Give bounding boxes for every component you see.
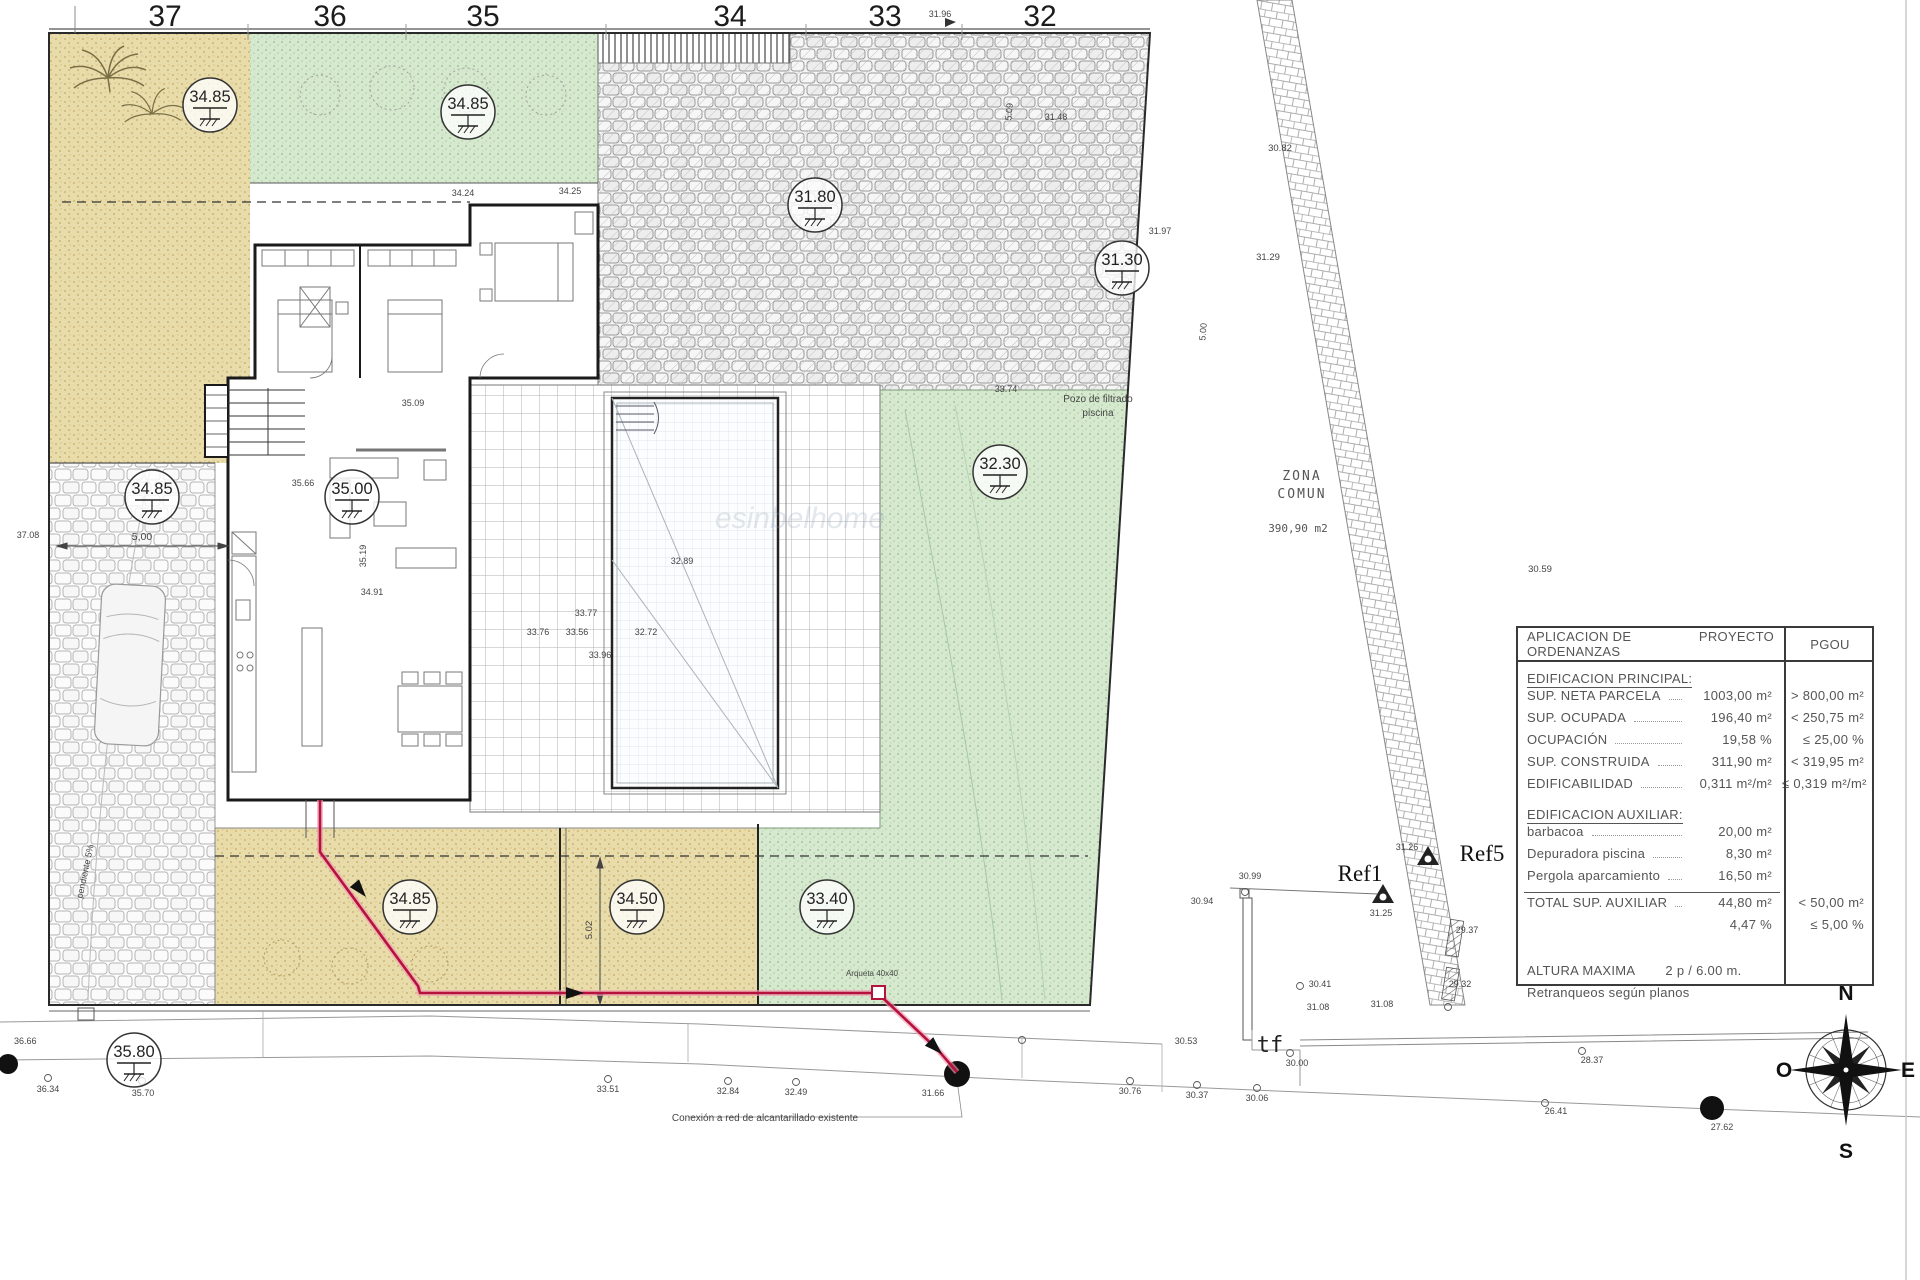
elevation-value: 34.50 [616,890,657,908]
tf-label: tf [1257,1033,1284,1058]
spot-label: 33.51 [597,1084,620,1094]
ref5-label: Ref5 [1460,841,1505,866]
elevation-value: 31.80 [794,188,835,206]
spot-label: 32.49 [785,1087,808,1097]
spot-label: 33.76 [527,627,550,637]
terrace-and-pool [470,385,880,812]
ordinance-row: SUP. NETA PARCELA 1003,00 m² > 800,00 m² [1518,688,1872,710]
spot-label: 33.77 [575,608,598,618]
table-header: APLICACION DE ORDENANZAS PROYECTO PGOU [1518,628,1872,662]
elevation-value: 35.00 [331,480,372,498]
cobble-hatch-overlay [598,33,1150,390]
total-divider [1524,892,1780,893]
spot-label: 30.37 [1186,1090,1209,1100]
elevation-value: 33.40 [806,890,847,908]
spot-label: 5.02 [584,921,595,940]
elevation-value: 34.85 [189,88,230,106]
elevation-marker: 34.85 [383,880,437,934]
spot-label: 36.34 [37,1084,60,1094]
ordinance-row: EDIFICABILIDAD 0,311 m²/m² ≤ 0,319 m²/m² [1518,776,1872,798]
spot-label: 29.37 [1456,925,1479,935]
spot-label: 35.66 [292,478,315,488]
total-percent-row: 4,47 % ≤ 5,00 % [1518,917,1872,939]
section-principal: EDIFICACION PRINCIPAL: [1518,662,1872,688]
spot-label: 30.82 [1268,143,1292,154]
elevation-marker: 31.30 [1095,241,1149,295]
ordinance-row: SUP. OCUPADA 196,40 m² < 250,75 m² [1518,710,1872,732]
sewer-note: Conexión a red de alcantarillado existen… [672,1113,859,1124]
elevation-value: 31.30 [1101,251,1142,269]
arqueta-label: Arqueta 40x40 [846,969,899,978]
spot-label: 32.72 [635,627,658,637]
zona-comun-label: COMUN [1277,487,1326,502]
table-title: APLICACION DE ORDENANZAS [1527,629,1699,659]
compass-e: E [1901,1059,1915,1082]
spot-label: 35.19 [358,545,368,568]
site-plan-sheet: 373635343332 34.8534.8531.8031.3034.8535… [0,0,1920,1280]
pool-filter-note: piscina [1082,408,1114,419]
lawn-zone-top [250,33,598,183]
col-proyecto: PROYECTO [1699,629,1774,659]
spot-label: 31.08 [1371,999,1394,1009]
survey-dot [1700,1096,1724,1120]
retaining-wall-band [598,33,790,63]
elevation-value: 34.85 [389,890,430,908]
elevation-marker: 35.80 [107,1033,161,1087]
spot-label: 31.48 [1045,112,1068,122]
ordinance-row: SUP. CONSTRUIDA 311,90 m² < 319,95 m² [1518,754,1872,776]
spot-label: 29.32 [1449,979,1472,989]
table-divider [1784,628,1786,984]
altura-row: ALTURA MAXIMA 2 p / 6.00 m. [1518,939,1872,978]
elevation-marker: 32.30 [973,445,1027,499]
spot-label: 31.08 [1307,1002,1330,1012]
compass-s: S [1839,1140,1853,1163]
elevation-marker: 34.85 [125,470,179,524]
survey-dot [0,1054,18,1074]
ruler-mark: 35 [466,0,499,33]
spot-label: 30.53 [1175,1036,1198,1046]
spot-label: 35.09 [402,398,425,408]
spot-label: 34.91 [361,587,384,597]
elevation-value: 32.30 [979,455,1020,473]
spot-label: 33.56 [566,627,589,637]
elevation-marker: 33.40 [800,880,854,934]
watermark: esinbelhome [715,502,885,535]
spot-label: 31.29 [1256,252,1280,263]
spot-label: 36.66 [14,1036,37,1046]
spot-label: 27.62 [1711,1122,1734,1132]
elevation-value: 35.80 [113,1043,154,1061]
elevation-marker: 31.80 [788,178,842,232]
spot-label: 32.89 [671,556,694,566]
spot-label: 30.06 [1246,1093,1269,1103]
spot-label: 31.97 [1149,226,1172,236]
spot-label: 31.25 [1370,908,1393,918]
total-row: TOTAL SUP. AUXILIAR 44,80 m² < 50,00 m² [1518,895,1872,917]
pool-filter-note: Pozo de filtrado [1063,394,1133,405]
spot-label: 5.09 [1003,103,1014,121]
spot-label: 30.94 [1191,896,1214,906]
ruler-marks: 373635343332 [148,0,1056,33]
elevation-marker: 35.00 [325,470,379,524]
ordinance-row: barbacoa 20,00 m² [1518,824,1872,846]
spot-label: 30.99 [1239,871,1262,881]
spot-label: 30.76 [1119,1086,1142,1096]
spot-label: 33.74 [995,384,1018,394]
ref1-label: Ref1 [1338,861,1383,886]
ruler-mark: 33 [868,0,901,33]
elevation-marker: 34.85 [441,85,495,139]
car-icon [94,583,166,746]
ordinance-row: OCUPACIÓN 19,58 % ≤ 25,00 % [1518,732,1872,754]
section-auxiliar: EDIFICACION AUXILIAR: [1518,798,1872,824]
spot-label: 33.96 [589,650,612,660]
ruler-mark: 36 [313,0,346,33]
elevation-value: 34.85 [131,480,172,498]
spot-label: 30.00 [1286,1058,1309,1068]
ruler-mark: 32 [1023,0,1056,33]
spot-label: 30.59 [1528,564,1552,575]
elevation-marker: 34.85 [183,78,237,132]
spot-label: 31.26 [1396,842,1419,852]
compass-rose [1790,1014,1902,1126]
spot-label: 34.24 [452,188,475,198]
zona-comun-area: 390,90 m2 [1268,522,1328,535]
elevation-marker: 34.50 [610,880,664,934]
ordinance-table: APLICACION DE ORDENANZAS PROYECTO PGOU E… [1516,626,1874,986]
col-pgou: PGOU [1788,637,1872,652]
spot-label: 5,00 [132,531,153,543]
arqueta-box [872,986,885,999]
spot-label: 37.08 [17,530,40,540]
spot-label: 32.84 [717,1086,740,1096]
ruler-mark: 37 [148,0,181,33]
compass-o: O [1776,1059,1792,1082]
spot-label: 34.25 [559,186,582,196]
spot-label: 28.37 [1581,1055,1604,1065]
spot-label: 26.41 [1545,1106,1568,1116]
elevation-value: 34.85 [447,95,488,113]
spot-label: 35.70 [132,1088,155,1098]
spot-label: 31.66 [922,1088,945,1098]
spot-label: 31.96 [929,9,952,19]
ruler-mark: 34 [713,0,746,33]
spot-label: 30.41 [1309,979,1332,989]
ordinance-row: Depuradora piscina 8,30 m² [1518,846,1872,868]
spot-label: 5.00 [1197,323,1208,341]
zona-comun-label: ZONA [1282,469,1321,484]
ordinance-row: Pergola aparcamiento 16,50 m² [1518,868,1872,890]
retranqueos-row: Retranqueos según planos [1518,978,1872,1000]
